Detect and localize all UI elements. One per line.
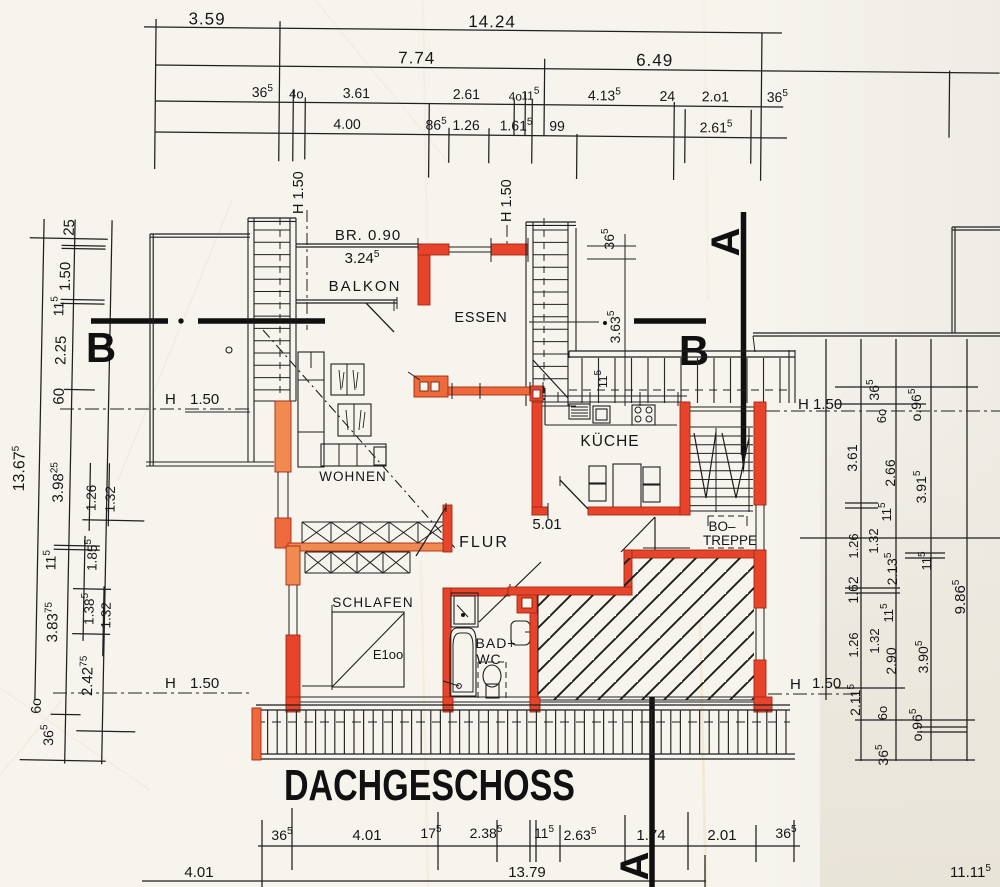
svg-text:1.32: 1.32: [102, 486, 118, 513]
svg-text:E1oo: E1oo: [373, 647, 403, 662]
svg-text:60: 60: [51, 388, 68, 405]
svg-text:2.01: 2.01: [707, 827, 736, 844]
svg-text:H 1.50: H 1.50: [291, 171, 307, 214]
svg-text:1.32: 1.32: [98, 602, 114, 629]
svg-text:DACHGESCHOSS: DACHGESCHOSS: [284, 761, 575, 810]
svg-text:2.61: 2.61: [453, 86, 481, 102]
svg-text:5.01: 5.01: [532, 516, 561, 533]
svg-text:BO–: BO–: [708, 519, 736, 534]
svg-text:4o: 4o: [289, 86, 304, 101]
svg-text:6o: 6o: [28, 698, 44, 714]
svg-text:1.50: 1.50: [190, 675, 219, 692]
svg-text:SCHLAFEN: SCHLAFEN: [332, 595, 414, 610]
svg-text:7.74: 7.74: [398, 48, 435, 67]
svg-text:1.26: 1.26: [846, 533, 861, 558]
svg-text:H: H: [165, 391, 176, 408]
svg-text:B: B: [86, 324, 116, 371]
svg-text:1.26: 1.26: [84, 485, 100, 512]
svg-text:6o: 6o: [875, 706, 890, 720]
svg-text:1.32: 1.32: [867, 628, 882, 653]
svg-text:WC: WC: [476, 651, 501, 667]
svg-text:TREPPE: TREPPE: [703, 533, 757, 548]
svg-text:1.50: 1.50: [190, 391, 219, 408]
svg-text:25: 25: [61, 219, 78, 236]
svg-text:BALKON: BALKON: [329, 278, 402, 295]
svg-text:1.32: 1.32: [866, 528, 881, 553]
svg-text:1.62: 1.62: [845, 576, 861, 603]
svg-text:6.49: 6.49: [636, 51, 673, 70]
svg-text:WOHNEN: WOHNEN: [319, 469, 387, 484]
svg-text:13.675: 13.675: [10, 445, 29, 491]
svg-text:2.o1: 2.o1: [702, 88, 730, 104]
svg-text:H: H: [790, 676, 801, 693]
svg-text:KÜCHE: KÜCHE: [580, 432, 639, 450]
svg-text:2.90: 2.90: [883, 647, 899, 674]
svg-text:24: 24: [659, 88, 675, 104]
svg-text:1.50: 1.50: [812, 675, 841, 692]
svg-text:14.24: 14.24: [468, 12, 516, 31]
svg-text:13.79: 13.79: [508, 864, 546, 881]
svg-text:4.01: 4.01: [184, 864, 213, 881]
svg-text:1.26: 1.26: [846, 632, 861, 657]
svg-text:3.61: 3.61: [343, 85, 371, 101]
svg-text:A: A: [704, 228, 748, 257]
svg-text:2.66: 2.66: [882, 459, 898, 486]
svg-text:ESSEN: ESSEN: [454, 310, 507, 326]
svg-text:FLUR: FLUR: [459, 534, 509, 551]
svg-text:BR. 0.90: BR. 0.90: [335, 227, 401, 244]
svg-text:11.115: 11.115: [950, 863, 991, 881]
svg-text:H: H: [165, 675, 176, 692]
svg-text:1.50: 1.50: [57, 262, 75, 292]
svg-text:3.61: 3.61: [844, 444, 860, 471]
svg-text:4.00: 4.00: [333, 116, 361, 132]
svg-text:BAD+: BAD+: [476, 635, 517, 651]
svg-text:1.26: 1.26: [452, 117, 480, 133]
svg-text:3.59: 3.59: [188, 9, 225, 28]
svg-text:4.01: 4.01: [352, 827, 381, 844]
svg-text:99: 99: [549, 118, 565, 134]
svg-text:A: A: [613, 852, 657, 881]
svg-text:2.25: 2.25: [52, 336, 70, 366]
svg-text:H 1.50: H 1.50: [499, 179, 515, 222]
